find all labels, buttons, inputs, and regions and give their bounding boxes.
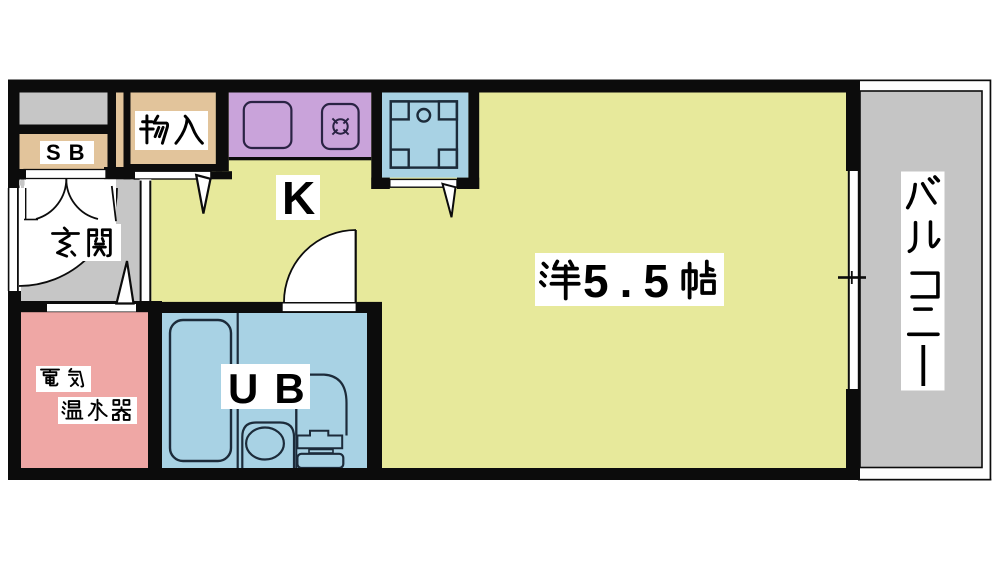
svg-text:UB: UB (228, 365, 321, 412)
svg-text:5.5: 5.5 (583, 255, 680, 307)
svg-text:K: K (282, 172, 315, 224)
svg-text:SB: SB (46, 140, 93, 165)
